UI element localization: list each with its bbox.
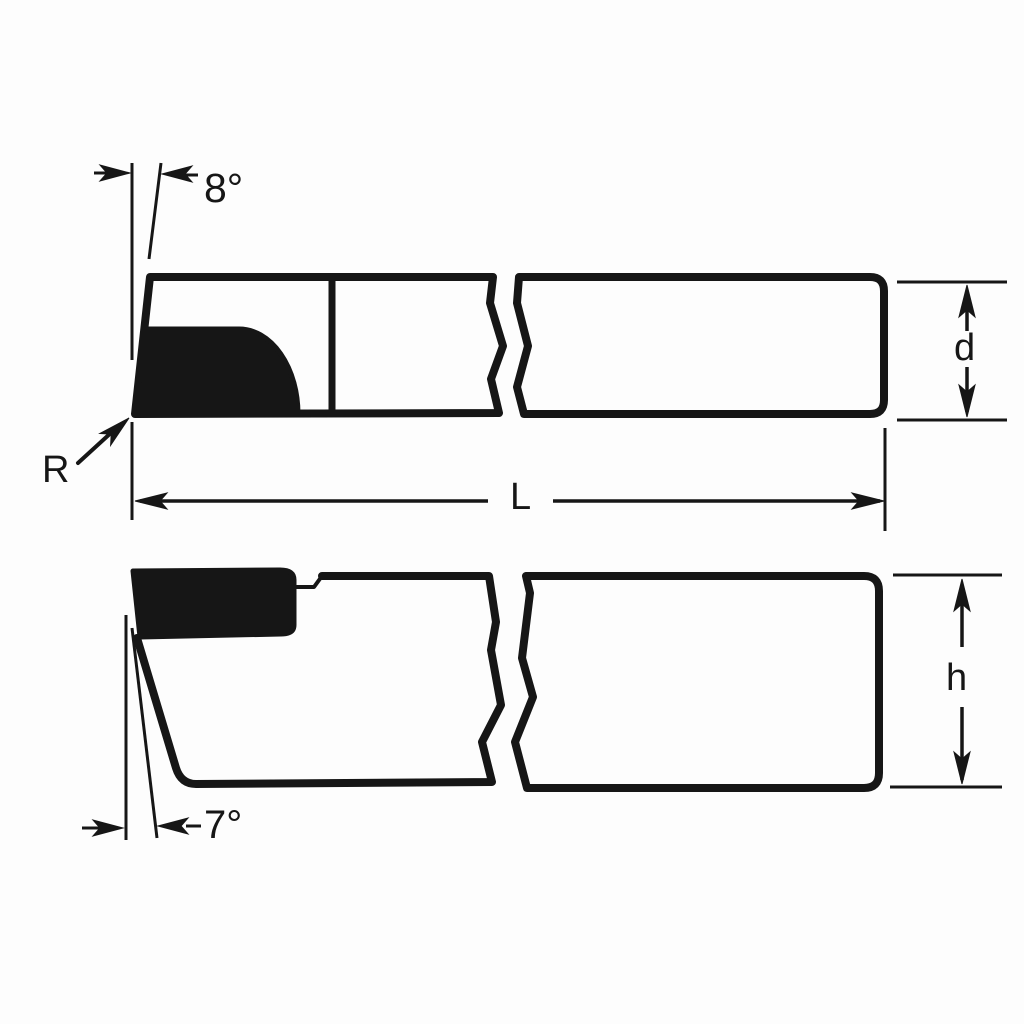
length-dimension-label: L (510, 476, 531, 518)
clearance-angle-label: 7° (204, 803, 242, 847)
shank-height-dimension: h (890, 575, 1002, 787)
side-view (133, 570, 879, 788)
top-view (135, 277, 884, 414)
top-view-body-right (517, 277, 884, 414)
side-view-body-right (515, 576, 879, 788)
carbide-tip-plan (136, 329, 298, 414)
angled-extension-line (149, 163, 161, 259)
nose-radius-callout: R (42, 418, 129, 491)
length-dimension: L (132, 422, 885, 531)
insert-seat-line (294, 576, 322, 587)
nose-radius-label: R (42, 449, 69, 491)
height-dimension-label: h (946, 657, 967, 699)
carbide-tip-side (133, 570, 294, 637)
shank-width-dimension: d (897, 282, 1007, 420)
rake-angle-label: 8° (204, 165, 243, 211)
leader-line (78, 431, 113, 463)
width-dimension-label: d (954, 327, 975, 369)
right-arrowhead-icon (158, 818, 188, 834)
tool-engineering-drawing: 8° R d L (0, 0, 1024, 1024)
drawing-canvas: 8° R d L (0, 0, 1024, 1024)
